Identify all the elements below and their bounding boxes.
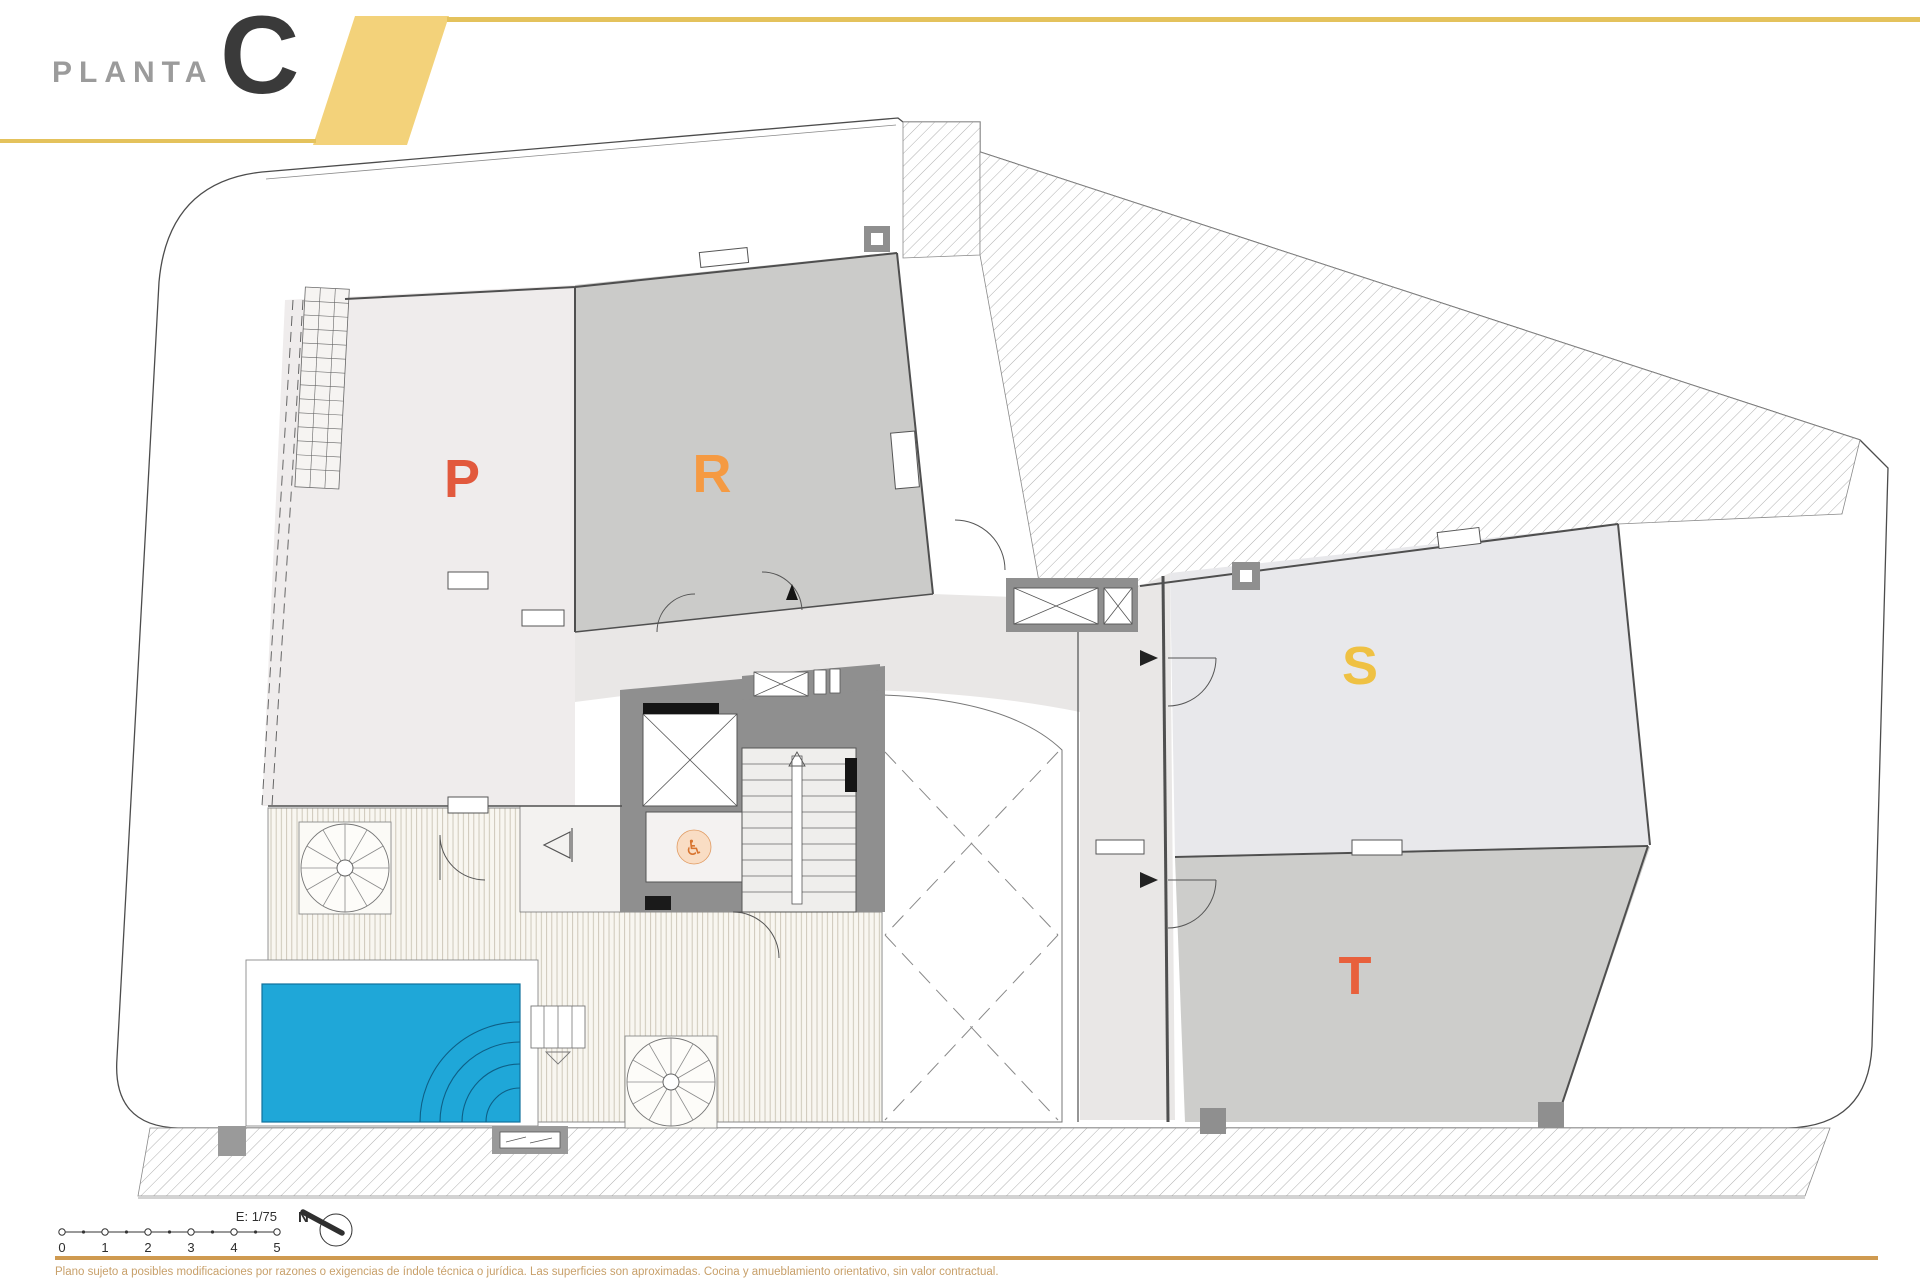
staircase bbox=[742, 748, 857, 912]
pier bbox=[1538, 1102, 1564, 1128]
scale-tick-3: 3 bbox=[187, 1240, 194, 1255]
elevator: ♿ bbox=[646, 812, 742, 882]
spiral-staircase-2 bbox=[625, 1036, 717, 1128]
window bbox=[1352, 840, 1402, 855]
window bbox=[891, 431, 920, 489]
unit-label-p: P bbox=[444, 449, 480, 509]
unit-label-t: T bbox=[1339, 946, 1372, 1006]
swimming-pool bbox=[262, 984, 520, 1122]
pool-area bbox=[246, 960, 585, 1154]
hatch-band-bottom bbox=[138, 1128, 1830, 1196]
page: PLANTA C bbox=[0, 0, 1920, 1280]
floor-plan-canvas: ♿ bbox=[0, 0, 1920, 1280]
scale-tick-0: 0 bbox=[58, 1240, 65, 1255]
wheelchair-icon: ♿ bbox=[685, 837, 704, 860]
unit-label-r: R bbox=[693, 444, 732, 504]
north-arrow: N bbox=[298, 1209, 352, 1246]
scale-tick-2: 2 bbox=[144, 1240, 151, 1255]
column bbox=[1232, 562, 1260, 590]
hatch-strip-top bbox=[903, 122, 980, 258]
footer-disclaimer: Plano sujeto a posibles modificaciones p… bbox=[55, 1266, 1875, 1278]
pier bbox=[218, 1126, 246, 1156]
unit-label-s: S bbox=[1342, 636, 1378, 696]
footer-rule bbox=[55, 1256, 1878, 1260]
window bbox=[522, 610, 564, 626]
scale-tick-5: 5 bbox=[273, 1240, 280, 1255]
scale-ratio-label: E: 1/75 bbox=[236, 1209, 277, 1224]
room-r bbox=[575, 252, 933, 632]
scale-bar: 0 1 2 3 4 5 E: 1/75 bbox=[58, 1209, 280, 1255]
vertical-core: ♿ bbox=[620, 664, 885, 912]
window bbox=[448, 797, 488, 813]
pier bbox=[1200, 1108, 1226, 1134]
pool-equipment-box bbox=[492, 1126, 568, 1154]
vent-shaft bbox=[643, 703, 737, 806]
window bbox=[448, 572, 488, 589]
window bbox=[1096, 840, 1144, 854]
scale-tick-1: 1 bbox=[101, 1240, 108, 1255]
column bbox=[864, 226, 890, 252]
scale-tick-4: 4 bbox=[230, 1240, 237, 1255]
spiral-staircase-1 bbox=[299, 822, 391, 914]
vent-assembly bbox=[1006, 578, 1138, 632]
vestibule bbox=[520, 806, 622, 912]
patio bbox=[882, 695, 1062, 1122]
